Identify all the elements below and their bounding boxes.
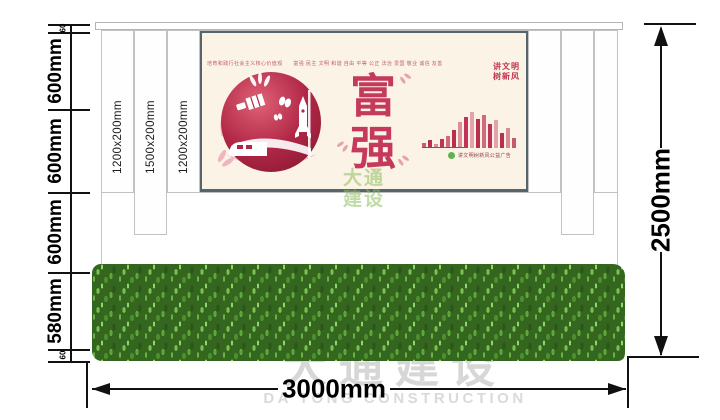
theme-characters: 富 强 [350, 71, 396, 175]
leaf-flourish-icon [334, 137, 350, 153]
leaf-flourish-icon [398, 69, 414, 85]
skyline-bar [494, 120, 498, 148]
dim-label-60-top: 60 [59, 24, 68, 33]
skyline-bar [452, 130, 456, 148]
wall-slat [594, 30, 618, 193]
dim-tick [48, 32, 90, 34]
skyline-bar [458, 122, 462, 148]
slat-size-label: 1200x200mm [112, 100, 124, 174]
hedge [92, 264, 625, 361]
dim-extension-right [627, 357, 629, 408]
bottom-dimension-line [390, 388, 626, 390]
skyline-bar [428, 140, 432, 148]
slat-size-label: 1500x200mm [145, 100, 157, 174]
dim-label-60-bottom: 60 [59, 351, 68, 360]
construction-drawing: 1200x200mm 1500x200mm 1200x200mm 培育和践行社会… [0, 0, 720, 420]
papercut-globe-illustration [215, 68, 327, 180]
arrow-up-icon [654, 26, 668, 46]
wall-slat-long: 1500x200mm [134, 30, 167, 235]
dim-tick-top-right [644, 23, 696, 25]
skyline-bar [446, 136, 450, 148]
skyline-bar [488, 124, 492, 148]
arrow-right-icon [608, 383, 626, 395]
slogan-line-1: 讲文明 [493, 62, 520, 72]
wall-top-rail [95, 22, 623, 30]
wall-slat: 1200x200mm [101, 30, 134, 193]
dim-label-600-1: 600mm [45, 38, 67, 104]
dim-label-600-3: 600mm [45, 199, 67, 265]
arrow-left-icon [92, 383, 110, 395]
green-watermark: 大通 建设 [342, 168, 386, 210]
slogan-line-2: 树新风 [493, 72, 520, 82]
skyline-bar [500, 133, 504, 148]
leaf-flourish-icon [396, 151, 412, 167]
dim-label-580: 580mm [45, 278, 67, 344]
wall-slat: 1200x200mm [167, 30, 200, 193]
dim-tick [48, 349, 90, 351]
dim-tick [48, 361, 90, 363]
skyline-bar [482, 115, 486, 148]
core-values-text: 培育和践行社会主义核心价值观 富强 民主 文明 和谐 自由 平等 公正 法治 爱… [207, 60, 443, 67]
skyline-bar [434, 144, 438, 148]
gray-watermark-en: DA TONG CONSTRUCTION [230, 390, 560, 407]
dim-label-600-2: 600mm [45, 118, 67, 184]
poster: 培育和践行社会主义核心价值观 富强 民主 文明 和谐 自由 平等 公正 法治 爱… [202, 33, 526, 189]
slat-size-label: 1200x200mm [178, 100, 190, 174]
dim-tick [48, 109, 90, 111]
skyline-bar [506, 128, 510, 148]
skyline-bar [470, 112, 474, 148]
slogan-block: 讲文明 树新风 [493, 62, 520, 82]
skyline-bar [464, 117, 468, 148]
bottom-dimension-line [92, 388, 278, 390]
bottom-dimension-label: 3000mm [282, 374, 386, 405]
theme-char-top: 富 [350, 71, 396, 123]
skyline-bar [440, 139, 444, 148]
dim-extension-left [86, 362, 88, 408]
green-badge-icon [448, 152, 455, 159]
dim-tick [48, 272, 90, 274]
arrow-down-icon [654, 336, 668, 356]
skyline-bar [476, 119, 480, 148]
right-dimension-line [660, 28, 662, 148]
dim-tick-bottom-right [627, 356, 699, 358]
right-dimension-label: 2500mm [646, 148, 677, 252]
wall-slat [528, 30, 561, 193]
skyline-bar [422, 143, 426, 148]
skyline-bar [512, 138, 516, 148]
wall-left-edge [101, 193, 102, 265]
green-watermark-line-2: 建设 [342, 189, 386, 210]
dim-tick [48, 192, 90, 194]
skyline-bars [422, 111, 526, 148]
green-watermark-line-1: 大通 [342, 168, 386, 189]
poster-footer: 讲文明树新风公益广告 [448, 152, 511, 159]
wall-right-edge [617, 193, 618, 265]
wall-slat-long [561, 30, 594, 235]
dim-tick [48, 24, 90, 26]
footer-caption: 讲文明树新风公益广告 [458, 152, 511, 159]
